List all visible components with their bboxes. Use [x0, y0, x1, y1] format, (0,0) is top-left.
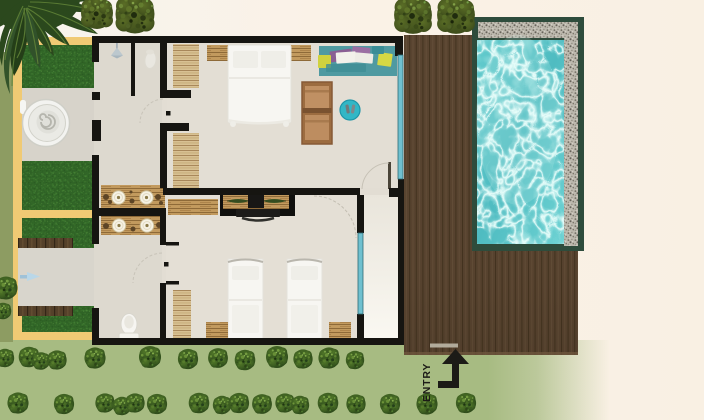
svg-text:ENTRY: ENTRY — [421, 363, 433, 402]
